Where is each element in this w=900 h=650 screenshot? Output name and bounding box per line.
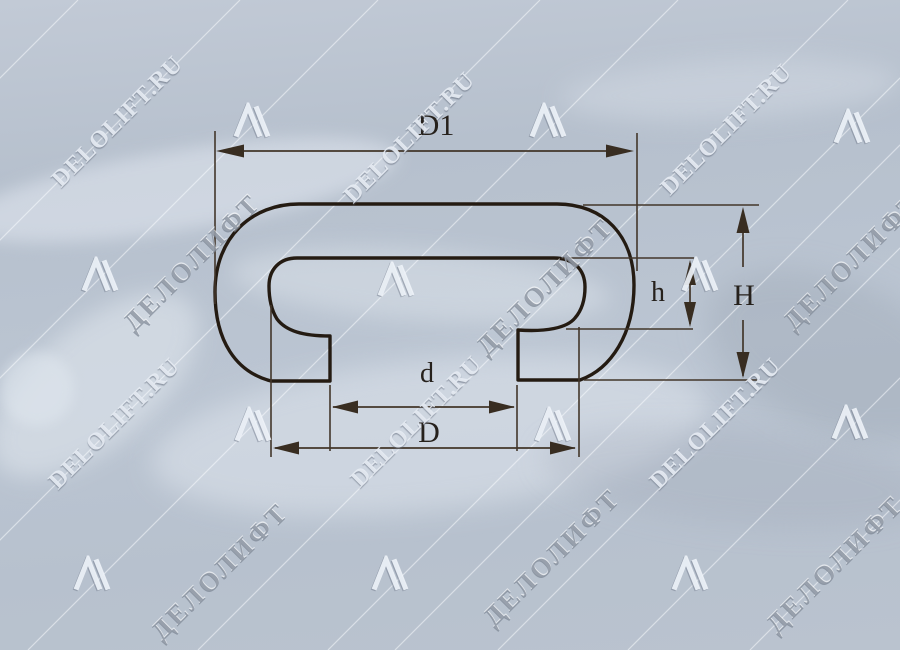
- dimension-label-h: h: [651, 277, 665, 309]
- dimension-label-D: D: [418, 416, 440, 450]
- drawing-canvas: D1 H h d D DELOLIFT.RU DELOLIFT.RU DELOL…: [0, 0, 900, 650]
- extension-lines: [215, 131, 759, 457]
- dimension-label-D1: D1: [418, 109, 455, 143]
- handrail-dimension-drawing: [0, 0, 900, 650]
- dimension-label-H: H: [733, 279, 755, 313]
- dimension-arrowheads: [216, 145, 750, 455]
- handrail-profile-outline: [215, 204, 634, 381]
- dimension-label-d: d: [420, 358, 434, 390]
